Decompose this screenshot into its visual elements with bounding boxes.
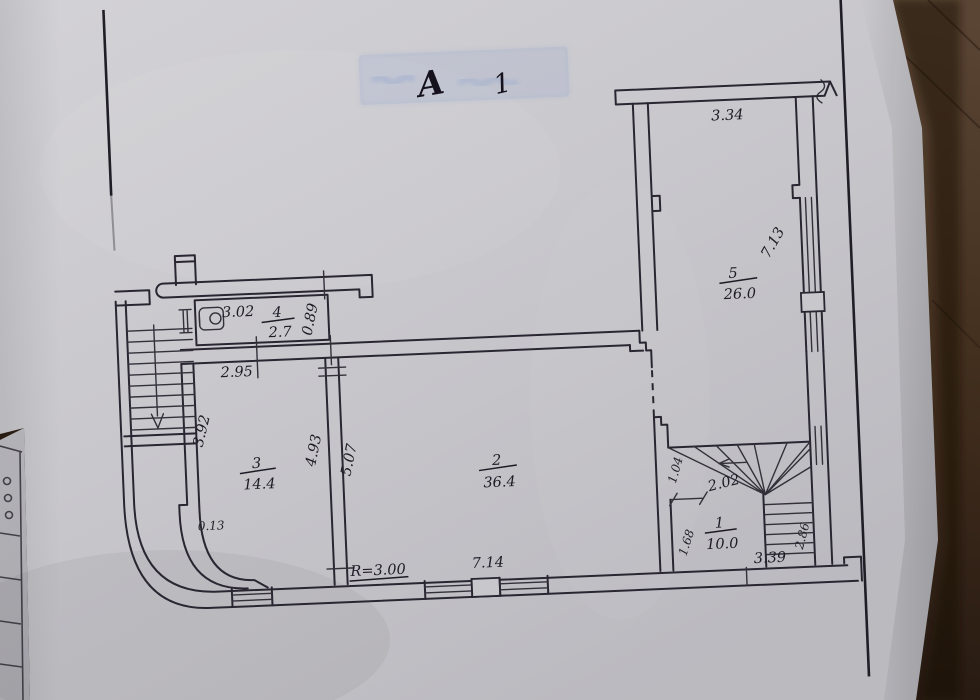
photo-of-floor-plan: А 1 [0,0,980,700]
vignette [0,0,980,700]
floor-plan-svg: А 1 [0,0,980,700]
